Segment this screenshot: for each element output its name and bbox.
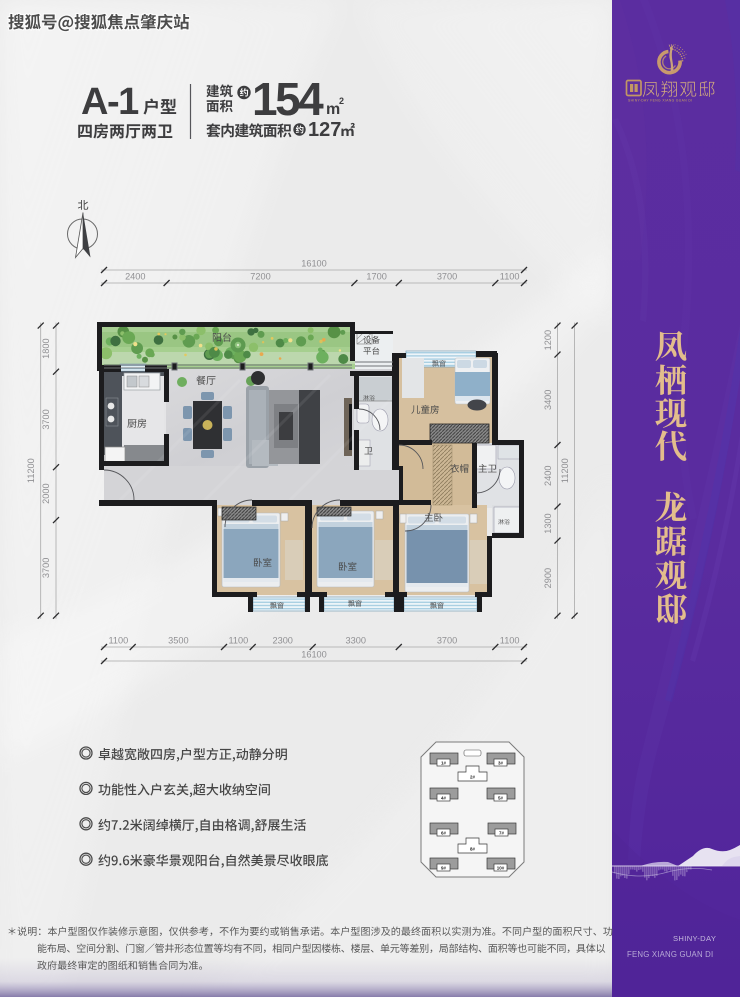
svg-text:FENG XIANG GUAN DI: FENG XIANG GUAN DI bbox=[627, 950, 713, 959]
svg-text:11200: 11200 bbox=[26, 458, 36, 483]
svg-text:2#: 2# bbox=[470, 775, 476, 780]
svg-text:2000: 2000 bbox=[41, 483, 51, 503]
svg-text:A-1: A-1 bbox=[81, 81, 139, 123]
svg-text:1#: 1# bbox=[441, 761, 447, 766]
svg-text:2: 2 bbox=[339, 96, 344, 106]
svg-text:1100: 1100 bbox=[228, 636, 248, 646]
svg-text:16100: 16100 bbox=[301, 259, 327, 269]
svg-text:7200: 7200 bbox=[250, 272, 270, 282]
svg-text:3#: 3# bbox=[498, 761, 504, 766]
svg-text:1100: 1100 bbox=[500, 272, 520, 282]
svg-text:SHINY-DAY FENG XIANG GUAN DI: SHINY-DAY FENG XIANG GUAN DI bbox=[628, 99, 692, 103]
svg-text:3700: 3700 bbox=[437, 636, 457, 646]
svg-text:3500: 3500 bbox=[168, 636, 188, 646]
svg-text:2900: 2900 bbox=[543, 568, 553, 588]
svg-text:7#: 7# bbox=[499, 831, 505, 836]
svg-text:1700: 1700 bbox=[366, 272, 386, 282]
svg-text:2300: 2300 bbox=[272, 636, 292, 646]
svg-text:3700: 3700 bbox=[41, 409, 51, 429]
svg-text:1800: 1800 bbox=[41, 338, 51, 358]
svg-text:3700: 3700 bbox=[437, 272, 457, 282]
svg-text:4#: 4# bbox=[441, 796, 447, 801]
svg-text:2400: 2400 bbox=[543, 466, 553, 486]
svg-text:3400: 3400 bbox=[543, 390, 553, 410]
svg-text:154: 154 bbox=[252, 73, 324, 125]
svg-text:9#: 9# bbox=[441, 866, 447, 871]
svg-text:8#: 8# bbox=[470, 847, 476, 852]
svg-text:3300: 3300 bbox=[346, 636, 366, 646]
svg-text:1200: 1200 bbox=[543, 330, 553, 350]
svg-text:2400: 2400 bbox=[125, 272, 145, 282]
svg-text:1300: 1300 bbox=[543, 513, 553, 533]
svg-text:1100: 1100 bbox=[500, 636, 520, 646]
svg-text:3700: 3700 bbox=[41, 558, 51, 578]
svg-text:16100: 16100 bbox=[301, 650, 327, 660]
svg-text:11200: 11200 bbox=[560, 458, 570, 483]
svg-text:10#: 10# bbox=[497, 866, 505, 871]
svg-text:127: 127 bbox=[308, 119, 341, 141]
svg-text:5#: 5# bbox=[498, 796, 504, 801]
svg-text:SHINY-DAY: SHINY-DAY bbox=[673, 934, 716, 943]
svg-text:6#: 6# bbox=[441, 831, 447, 836]
svg-text:1100: 1100 bbox=[108, 636, 128, 646]
